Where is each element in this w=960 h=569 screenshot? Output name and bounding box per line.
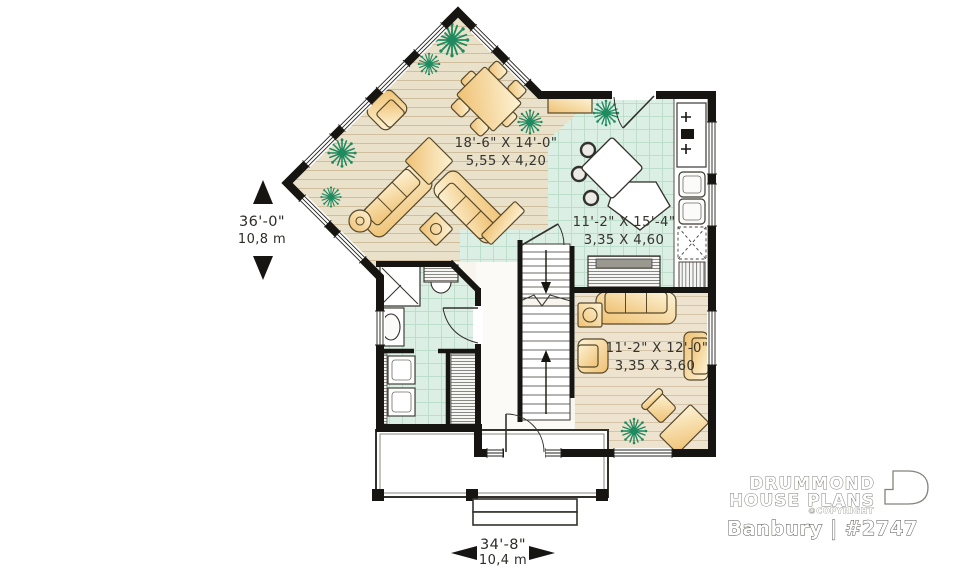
staircase xyxy=(518,244,574,420)
arrow-right-icon xyxy=(529,546,555,560)
window xyxy=(375,311,385,345)
family-room-dimensions-metric: 3,35 X 3,60 xyxy=(615,359,696,374)
kitchen-dimensions-metric: 3,35 X 4,60 xyxy=(584,233,665,248)
lamp-table xyxy=(578,303,602,327)
window xyxy=(707,311,717,365)
plant-icon xyxy=(517,109,542,134)
plant-icon xyxy=(320,186,341,207)
porch xyxy=(372,430,608,525)
sidelight-window xyxy=(545,448,561,458)
plant-icon xyxy=(621,418,648,445)
branding: DRUMMOND HOUSE PLANS ©COPYRIGHT Banbury … xyxy=(727,471,928,540)
width-dimension: 34'-8" 10,4 m xyxy=(451,537,555,568)
width-metric: 10,4 m xyxy=(479,553,527,568)
family-room-dimensions-imperial: 11'-2" X 12'-0" xyxy=(606,341,709,356)
closet-shelving xyxy=(451,354,476,424)
window xyxy=(707,184,717,226)
arrow-up-icon xyxy=(253,180,273,204)
depth-imperial: 36'-0" xyxy=(239,214,285,230)
plant-icon xyxy=(593,100,620,127)
width-imperial: 34'-8" xyxy=(480,537,526,553)
fridge-icon xyxy=(677,103,706,167)
depth-metric: 10,8 m xyxy=(238,232,286,247)
floor-plan-image: 18'-6" X 14'-0" 5,55 X 4,20 11'-2" X 15'… xyxy=(0,0,960,569)
porch-post xyxy=(596,489,608,501)
depth-dimension: 36'-0" 10,8 m xyxy=(238,180,286,280)
window xyxy=(707,122,717,174)
kitchen-chair xyxy=(584,191,598,205)
family-armchair xyxy=(578,339,608,373)
dryer-icon xyxy=(388,388,415,416)
piano-keys xyxy=(596,259,652,268)
washer-icon xyxy=(388,356,415,384)
kitchen-chair xyxy=(581,143,595,157)
living-room-dimensions-imperial: 18'-6" X 14'-0" xyxy=(455,136,558,151)
living-room-dimensions-metric: 5,55 X 4,20 xyxy=(466,154,547,169)
drummond-logo-icon xyxy=(885,471,928,504)
kitchen-dimensions-imperial: 11'-2" X 15'-4" xyxy=(573,215,676,230)
porch-post xyxy=(372,489,384,501)
plan-name-label: Banbury | #2747 xyxy=(727,517,918,540)
arrow-down-icon xyxy=(253,256,273,280)
shower-icon xyxy=(380,266,420,306)
round-side-table xyxy=(349,210,371,232)
copyright-label: ©COPYRIGHT xyxy=(808,507,874,516)
sidelight-window xyxy=(487,448,503,458)
buffet xyxy=(548,98,592,113)
plant-icon xyxy=(418,53,441,76)
family-sofa xyxy=(596,292,676,324)
arrow-left-icon xyxy=(451,546,477,560)
front-steps xyxy=(473,499,577,525)
dishwasher-icon xyxy=(679,262,705,288)
floor-plan-svg: 18'-6" X 14'-0" 5,55 X 4,20 11'-2" X 15'… xyxy=(0,0,960,569)
window xyxy=(614,448,672,458)
